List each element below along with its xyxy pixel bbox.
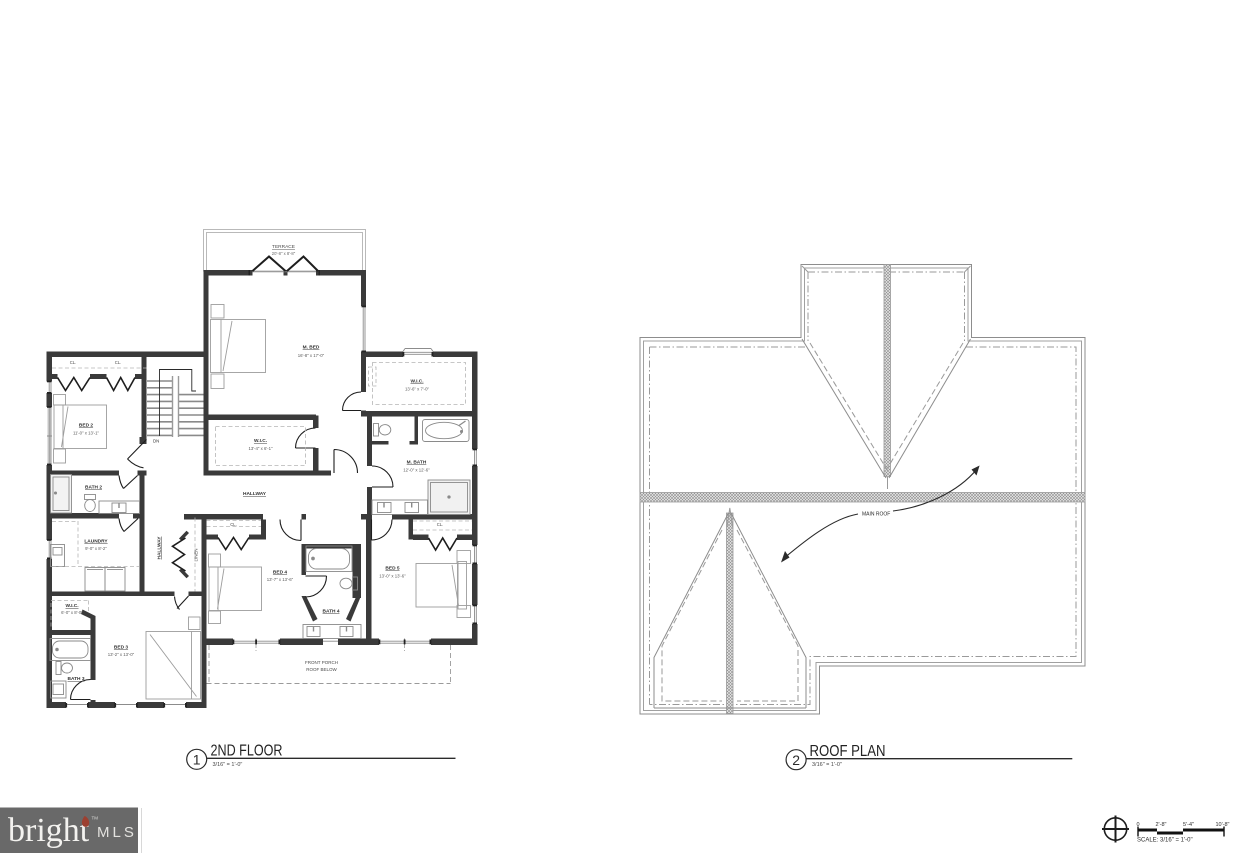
svg-text:3/16" = 1'-0": 3/16" = 1'-0" bbox=[812, 762, 842, 768]
svg-text:W.I.C.: W.I.C. bbox=[254, 438, 267, 444]
svg-text:3/16" = 1'-0": 3/16" = 1'-0" bbox=[213, 762, 243, 768]
svg-text:W.I.C.: W.I.C. bbox=[410, 379, 423, 385]
svg-text:CL.: CL. bbox=[230, 522, 237, 527]
svg-text:13'-0" x 13'-6": 13'-0" x 13'-6" bbox=[379, 574, 406, 579]
svg-text:1: 1 bbox=[193, 752, 201, 768]
svg-text:BED 4: BED 4 bbox=[273, 570, 287, 576]
svg-text:11'-0" x 13'-1": 11'-0" x 13'-1" bbox=[73, 431, 100, 436]
svg-text:20'-8" x 8'-8": 20'-8" x 8'-8" bbox=[272, 251, 296, 256]
svg-text:13'-7" x 13'-6": 13'-7" x 13'-6" bbox=[267, 577, 294, 582]
svg-text:SCALE: 3/16" = 1'-0": SCALE: 3/16" = 1'-0" bbox=[1137, 838, 1193, 844]
svg-text:2ND FLOOR: 2ND FLOOR bbox=[211, 743, 283, 760]
svg-text:TM: TM bbox=[92, 816, 99, 821]
svg-text:ROOF PLAN: ROOF PLAN bbox=[810, 743, 886, 760]
svg-text:5'-4": 5'-4" bbox=[1183, 822, 1194, 828]
svg-text:BATH 2: BATH 2 bbox=[85, 485, 102, 491]
svg-text:FRONT PORCH: FRONT PORCH bbox=[305, 660, 338, 665]
svg-text:M. BED: M. BED bbox=[303, 345, 320, 351]
svg-text:CL.: CL. bbox=[437, 522, 444, 527]
svg-text:MAIN ROOF: MAIN ROOF bbox=[862, 512, 890, 518]
svg-text:TERRACE: TERRACE bbox=[272, 244, 295, 250]
svg-text:6'-0" x 8'-0": 6'-0" x 8'-0" bbox=[61, 610, 83, 615]
svg-text:W.I.C.: W.I.C. bbox=[65, 603, 78, 609]
svg-text:BED 3: BED 3 bbox=[114, 645, 128, 651]
svg-text:12'-0" x 12'-6": 12'-0" x 12'-6" bbox=[403, 468, 430, 473]
svg-text:MLS: MLS bbox=[97, 824, 137, 841]
svg-text:CL.: CL. bbox=[70, 360, 77, 365]
svg-text:M. BATH: M. BATH bbox=[407, 460, 427, 466]
svg-text:2'-8": 2'-8" bbox=[1156, 822, 1167, 828]
svg-text:BATH 3: BATH 3 bbox=[68, 676, 85, 682]
svg-text:HALLWAY: HALLWAY bbox=[243, 491, 267, 497]
svg-text:DN: DN bbox=[153, 439, 159, 444]
svg-text:2: 2 bbox=[792, 752, 800, 768]
svg-text:13'-6" x 7'-0": 13'-6" x 7'-0" bbox=[405, 387, 430, 392]
svg-text:ROOF BELOW: ROOF BELOW bbox=[306, 667, 337, 672]
svg-text:BED 2: BED 2 bbox=[79, 423, 93, 429]
svg-text:13'-2" x 13'-0": 13'-2" x 13'-0" bbox=[108, 652, 135, 657]
svg-text:bright: bright bbox=[8, 812, 90, 849]
svg-text:BED 5: BED 5 bbox=[385, 566, 399, 572]
svg-text:16'-8" x 17'-0": 16'-8" x 17'-0" bbox=[298, 353, 325, 358]
svg-text:10'-8": 10'-8" bbox=[1216, 822, 1230, 828]
svg-text:CL.: CL. bbox=[115, 360, 122, 365]
svg-text:BATH 4: BATH 4 bbox=[323, 609, 340, 615]
svg-text:HALLWAY: HALLWAY bbox=[157, 536, 163, 560]
svg-text:LINEN: LINEN bbox=[194, 549, 199, 562]
svg-text:9'-0" x 8'-2": 9'-0" x 8'-2" bbox=[85, 546, 107, 551]
svg-text:LAUNDRY: LAUNDRY bbox=[84, 539, 108, 545]
svg-text:13'-4" x 6'-1": 13'-4" x 6'-1" bbox=[248, 446, 273, 451]
